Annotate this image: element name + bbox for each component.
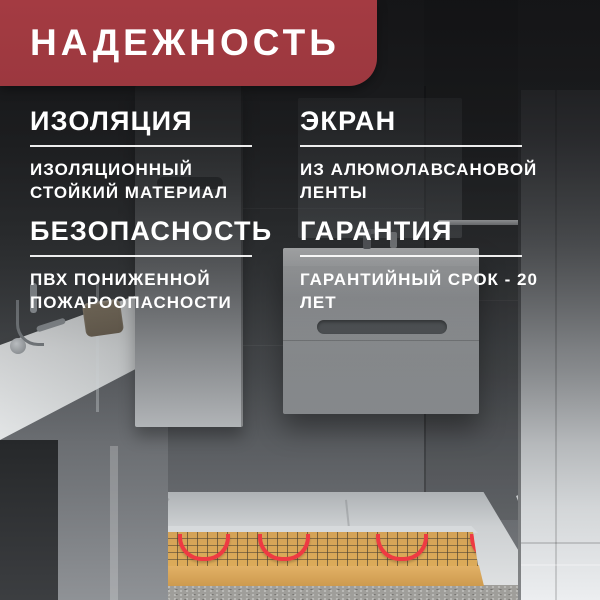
heating-cable: [258, 534, 310, 561]
tub-overflow-cap: [10, 338, 26, 354]
tile-over-mat: [148, 526, 478, 533]
feature-title: ЭКРАН: [300, 106, 570, 136]
banner-title: НАДЕЖНОСТЬ: [30, 22, 340, 64]
feature-description: ПВХ ПОНИЖЕННОЙ ПОЖАРООПАСНОСТИ: [30, 268, 282, 314]
door-moulding: [521, 564, 600, 566]
heating-cable: [178, 534, 230, 561]
vanity-drawer-seam: [283, 340, 479, 341]
feature-underline: [30, 145, 252, 147]
promo-image: НАДЕЖНОСТЬ ИЗОЛЯЦИЯ ИЗОЛЯЦИОННЫЙ СТОЙКИЙ…: [0, 0, 600, 600]
banner: НАДЕЖНОСТЬ: [0, 0, 377, 86]
feature-title: ИЗОЛЯЦИЯ: [30, 106, 300, 136]
dark-wall-corner: [0, 440, 58, 600]
feature-description: ИЗ АЛЮМОЛАВСАНОВОЙ ЛЕНТЫ: [300, 158, 552, 204]
heating-mat: [148, 532, 478, 566]
feature-safety: БЕЗОПАСНОСТЬ ПВХ ПОНИЖЕННОЙ ПОЖАРООПАСНО…: [30, 216, 300, 314]
feature-screen: ЭКРАН ИЗ АЛЮМОЛАВСАНОВОЙ ЛЕНТЫ: [300, 106, 570, 204]
feature-title: БЕЗОПАСНОСТЬ: [30, 216, 300, 246]
vanity-handle: [317, 320, 447, 334]
concrete-base-layer: [106, 585, 522, 600]
feature-title: ГАРАНТИЯ: [300, 216, 570, 246]
feature-warranty: ГАРАНТИЯ ГАРАНТИЙНЫЙ СРОК - 20 ЛЕТ: [300, 216, 570, 314]
heating-cable: [376, 534, 428, 561]
feature-insulation: ИЗОЛЯЦИЯ ИЗОЛЯЦИОННЫЙ СТОЙКИЙ МАТЕРИАЛ: [30, 106, 300, 204]
door-moulding: [521, 542, 600, 544]
feature-description: ГАРАНТИЙНЫЙ СРОК - 20 ЛЕТ: [300, 268, 552, 314]
feature-description: ИЗОЛЯЦИОННЫЙ СТОЙКИЙ МАТЕРИАЛ: [30, 158, 282, 204]
feature-underline: [300, 145, 522, 147]
feature-underline: [300, 255, 522, 257]
feature-grid: ИЗОЛЯЦИЯ ИЗОЛЯЦИОННЫЙ СТОЙКИЙ МАТЕРИАЛ Э…: [30, 106, 575, 314]
bathtub-apron-edge: [110, 446, 118, 600]
feature-underline: [30, 255, 252, 257]
screed-layer: [142, 565, 484, 586]
